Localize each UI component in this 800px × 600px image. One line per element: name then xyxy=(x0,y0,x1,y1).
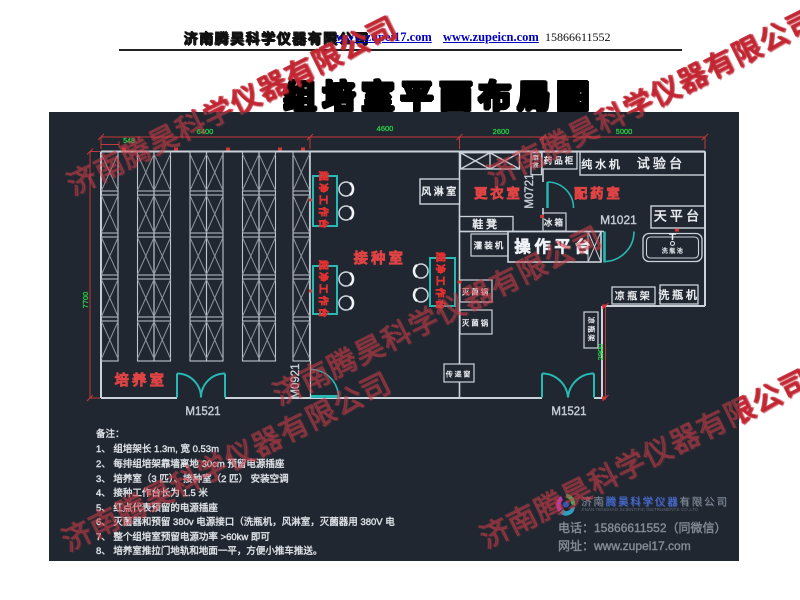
svg-text:7700: 7700 xyxy=(81,292,90,309)
svg-text:6400: 6400 xyxy=(197,127,214,136)
svg-text:纯水机: 纯水机 xyxy=(581,157,622,171)
svg-text:试验台: 试验台 xyxy=(637,156,686,171)
svg-text:传递窗: 传递窗 xyxy=(446,370,472,379)
svg-text:天平台: 天平台 xyxy=(654,209,703,224)
svg-text:鞋柜: 鞋柜 xyxy=(531,154,539,169)
svg-text:灭菌锅: 灭菌锅 xyxy=(462,287,490,297)
svg-text:凉瓶架: 凉瓶架 xyxy=(587,317,596,343)
svg-text:鞋凳: 鞋凳 xyxy=(472,217,500,231)
svg-text:5000: 5000 xyxy=(616,127,633,136)
svg-text:冰箱: 冰箱 xyxy=(544,218,565,228)
svg-text:超净工作台: 超净工作台 xyxy=(434,251,446,312)
svg-text:M1521: M1521 xyxy=(185,406,220,418)
svg-text:药品柜: 药品柜 xyxy=(544,156,576,166)
svg-text:接种室: 接种室 xyxy=(354,250,407,266)
svg-text:M1021: M1021 xyxy=(600,213,637,227)
svg-text:操作平台: 操作平台 xyxy=(514,237,594,256)
svg-text:配药室: 配药室 xyxy=(574,186,623,201)
svg-text:4600: 4600 xyxy=(377,124,394,133)
svg-text:凉瓶架: 凉瓶架 xyxy=(615,290,653,303)
svg-text:超净工作台: 超净工作台 xyxy=(317,170,329,231)
svg-text:548: 548 xyxy=(123,138,135,145)
svg-text:超净工作台: 超净工作台 xyxy=(317,259,329,320)
svg-text:2900: 2900 xyxy=(596,344,605,361)
svg-text:灌装机: 灌装机 xyxy=(474,241,506,251)
svg-text:M1521: M1521 xyxy=(551,406,586,418)
svg-text:洗瓶机: 洗瓶机 xyxy=(658,288,699,302)
svg-text:2600: 2600 xyxy=(493,127,510,136)
svg-text:M0921: M0921 xyxy=(290,363,302,398)
svg-text:洗瓶池: 洗瓶池 xyxy=(662,247,685,255)
svg-text:更衣室: 更衣室 xyxy=(474,186,523,201)
svg-text:灭菌锅: 灭菌锅 xyxy=(462,318,490,328)
svg-text:风淋室: 风淋室 xyxy=(421,185,459,198)
svg-text:M0721: M0721 xyxy=(524,173,536,208)
svg-text:培养室: 培养室 xyxy=(115,372,168,388)
